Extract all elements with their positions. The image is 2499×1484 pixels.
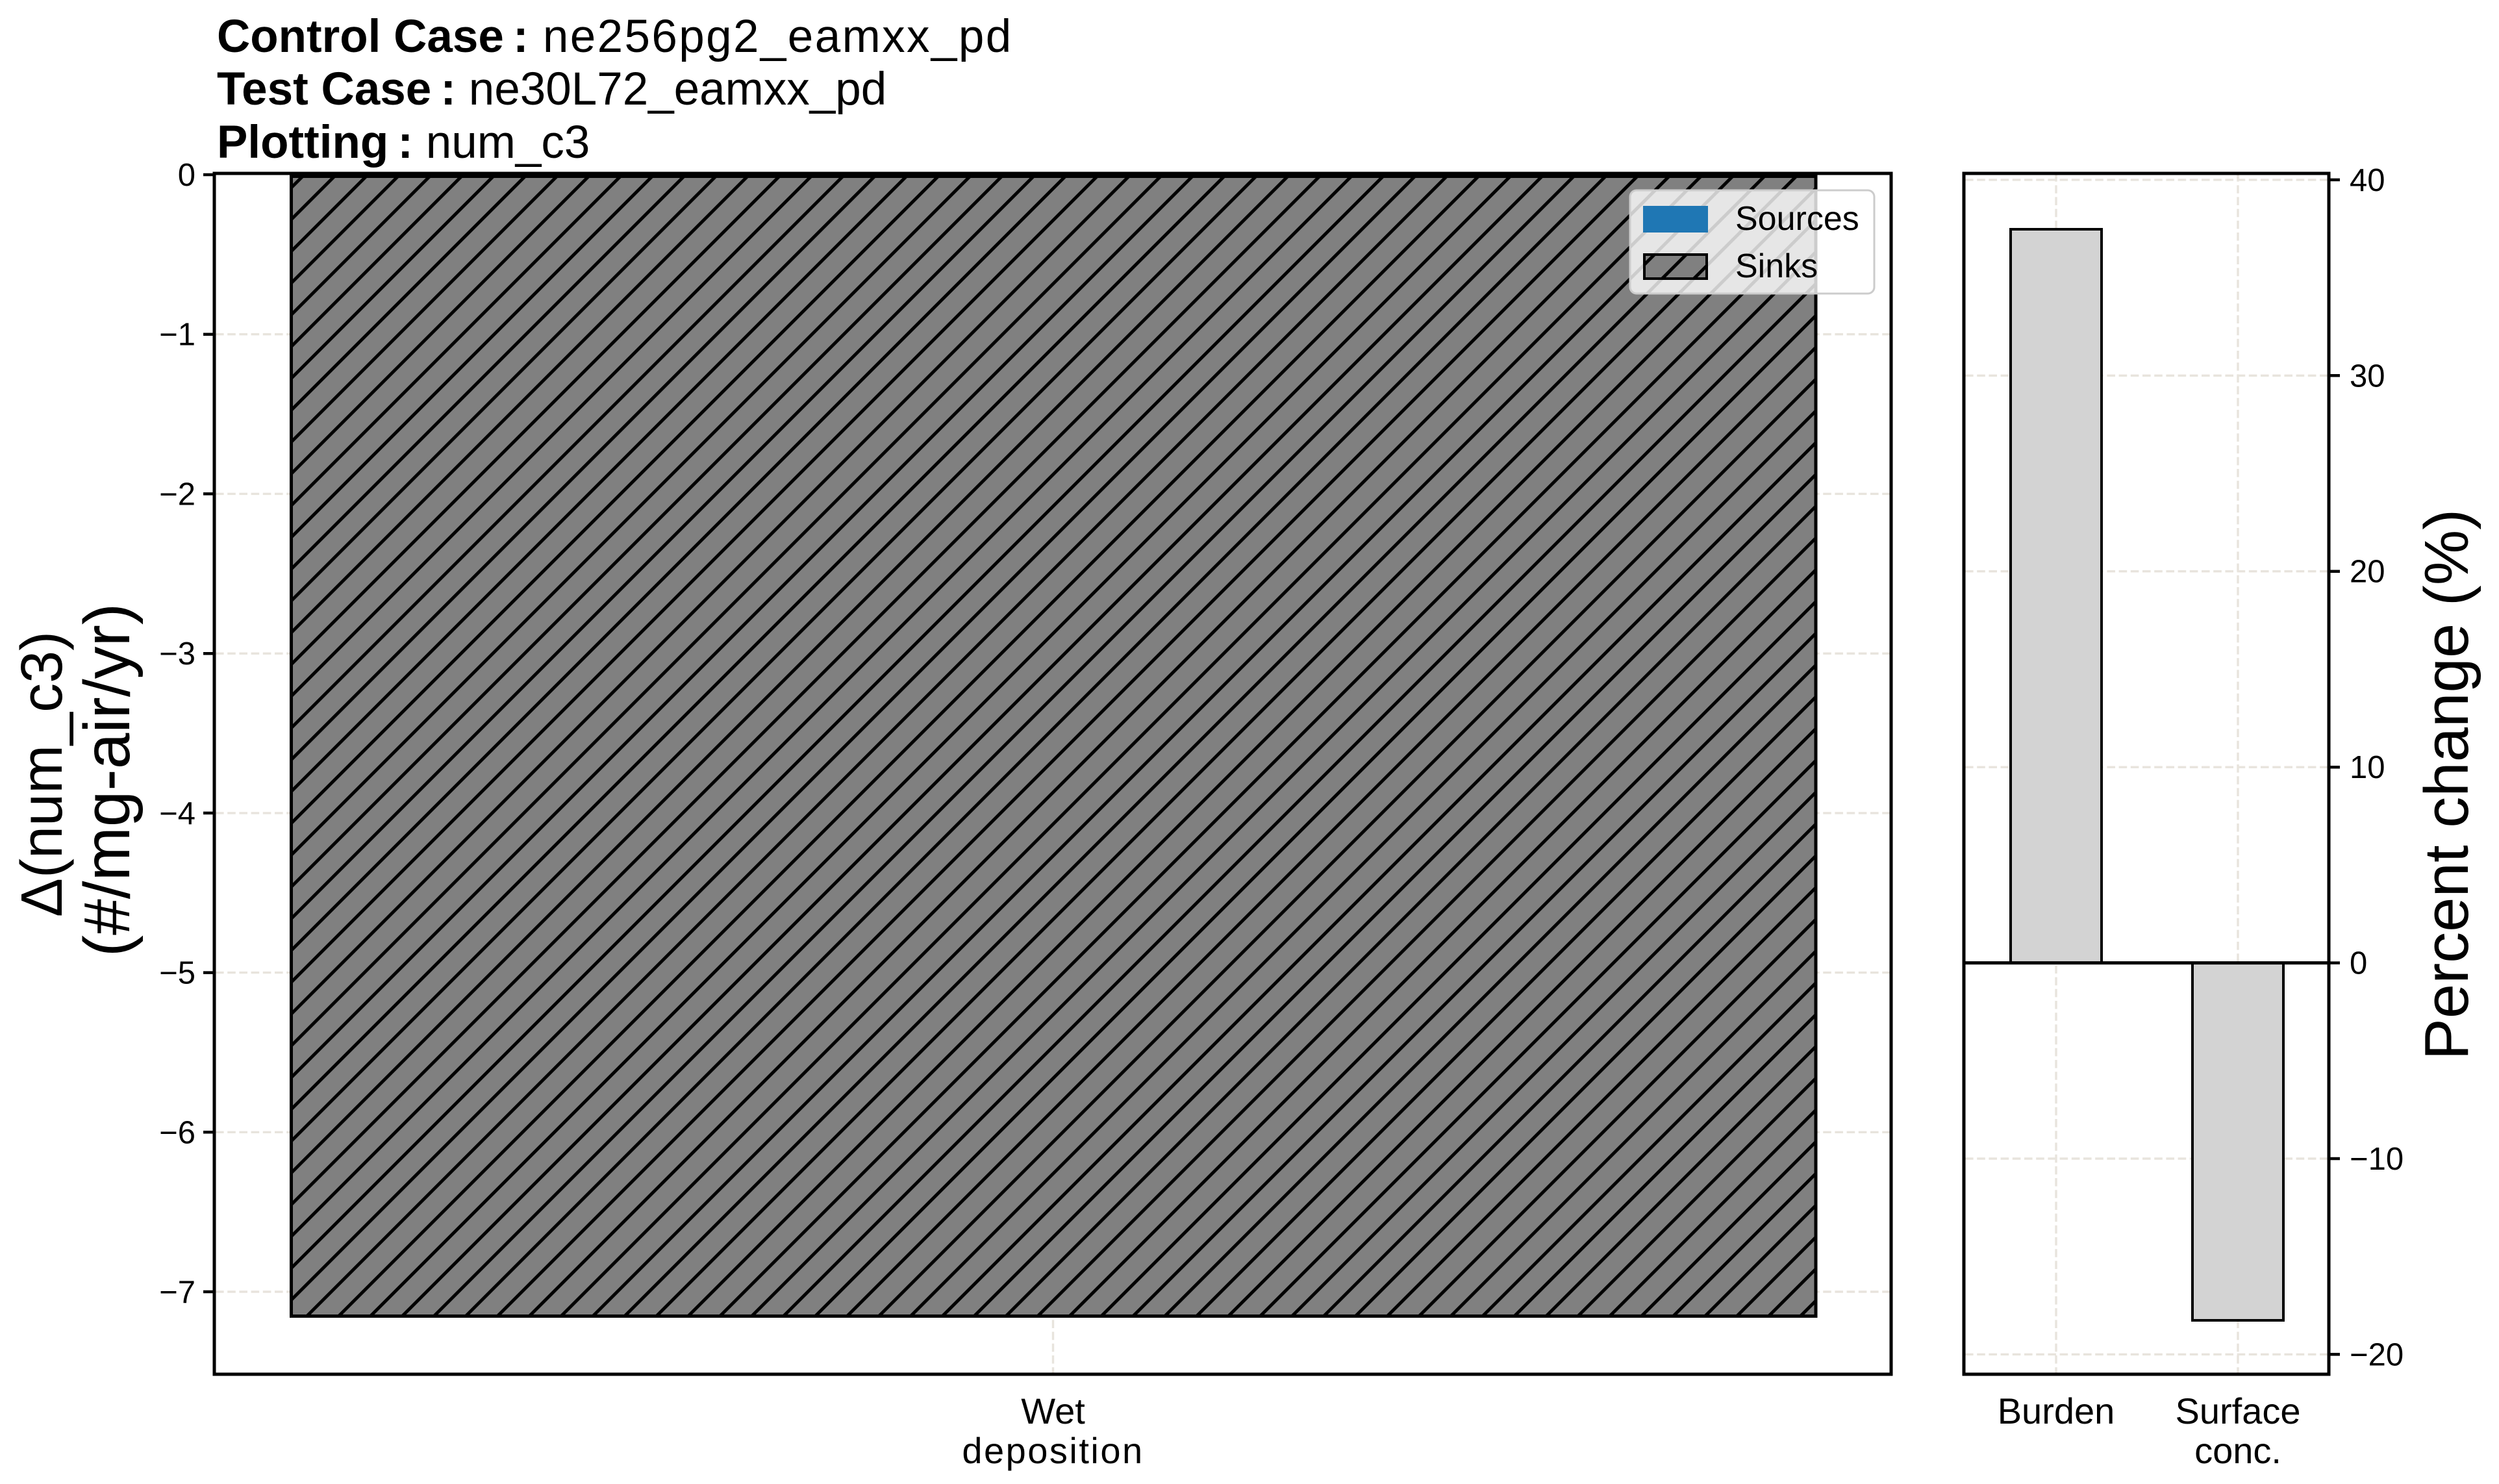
svg-text:Burden: Burden bbox=[1998, 1390, 2115, 1431]
svg-text:0: 0 bbox=[2350, 946, 2367, 981]
svg-text:Test Case : ne30L72_eamxx_pd: Test Case : ne30L72_eamxx_pd bbox=[217, 64, 886, 115]
svg-text:(#/mg-air/yr): (#/mg-air/yr) bbox=[71, 603, 144, 957]
svg-text:Sources: Sources bbox=[1735, 200, 1859, 238]
svg-text:Δ(num_c3): Δ(num_c3) bbox=[10, 631, 75, 917]
svg-text:−5: −5 bbox=[159, 956, 195, 991]
svg-text:Sinks: Sinks bbox=[1735, 247, 1818, 285]
svg-text:30: 30 bbox=[2350, 358, 2385, 394]
svg-text:deposition: deposition bbox=[962, 1430, 1144, 1471]
svg-text:Wet: Wet bbox=[1021, 1390, 1085, 1431]
svg-text:−20: −20 bbox=[2350, 1337, 2404, 1372]
svg-text:Control Case : ne256pg2_eamxx: Control Case : ne256pg2_eamxx_pd bbox=[217, 11, 1013, 62]
svg-text:−6: −6 bbox=[159, 1115, 195, 1150]
svg-text:conc.: conc. bbox=[2194, 1430, 2281, 1471]
svg-text:10: 10 bbox=[2350, 750, 2385, 785]
svg-text:40: 40 bbox=[2350, 163, 2385, 198]
svg-text:Plotting : num_c3: Plotting : num_c3 bbox=[217, 117, 590, 168]
svg-text:−7: −7 bbox=[159, 1275, 195, 1310]
svg-text:20: 20 bbox=[2350, 555, 2385, 590]
svg-text:0: 0 bbox=[178, 158, 195, 193]
svg-text:−4: −4 bbox=[159, 796, 195, 831]
svg-text:−1: −1 bbox=[159, 318, 195, 353]
svg-text:−2: −2 bbox=[159, 477, 195, 512]
svg-text:Percent change (%): Percent change (%) bbox=[2412, 509, 2481, 1060]
svg-text:Surface: Surface bbox=[2176, 1390, 2301, 1431]
svg-text:−10: −10 bbox=[2350, 1142, 2404, 1177]
svg-text:−3: −3 bbox=[159, 636, 195, 672]
